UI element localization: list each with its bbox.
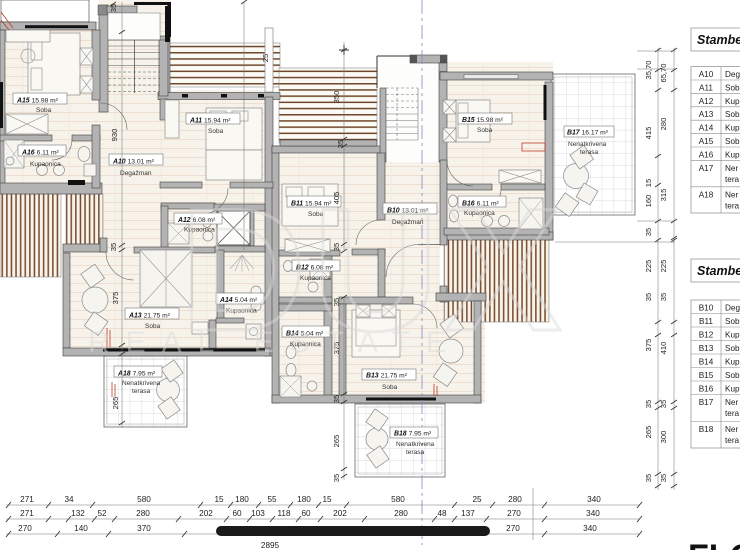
svg-text:270: 270 [18, 524, 32, 533]
svg-text:35: 35 [644, 400, 653, 408]
svg-text:Kup: Kup [725, 124, 740, 133]
svg-text:A15: A15 [699, 137, 714, 146]
svg-text:Deg: Deg [725, 304, 740, 313]
svg-text:25: 25 [261, 54, 270, 62]
svg-text:Sob: Sob [725, 317, 740, 326]
svg-text:35: 35 [644, 293, 653, 301]
svg-text:tera: tera [725, 175, 740, 184]
svg-text:A18: A18 [699, 190, 714, 199]
svg-text:tera: tera [725, 201, 740, 210]
svg-text:280: 280 [394, 509, 408, 518]
svg-text:103: 103 [251, 509, 265, 518]
svg-text:B18: B18 [699, 425, 714, 434]
svg-text:65,70: 65,70 [659, 63, 668, 82]
svg-text:25: 25 [472, 495, 482, 504]
svg-text:A16: A16 [699, 150, 714, 159]
svg-text:270: 270 [507, 509, 521, 518]
svg-text:tera: tera [725, 409, 740, 418]
svg-text:A13 21.75 m²: A13 21.75 m² [128, 313, 171, 320]
svg-text:terasa: terasa [580, 149, 598, 156]
svg-text:265: 265 [644, 426, 653, 439]
svg-text:Ner: Ner [725, 425, 738, 434]
svg-text:Nenatkrivena: Nenatkrivena [396, 441, 435, 448]
svg-text:B13 21.75 m²: B13 21.75 m² [366, 373, 408, 380]
svg-text:A13: A13 [699, 110, 714, 119]
svg-text:Ner: Ner [725, 164, 738, 173]
svg-text:A15 15.98 m²: A15 15.98 m² [16, 98, 59, 105]
svg-text:FLO: FLO [688, 538, 740, 550]
svg-text:580: 580 [137, 495, 151, 504]
svg-text:580: 580 [391, 495, 405, 504]
svg-text:A11 15.94 m²: A11 15.94 m² [189, 118, 231, 125]
svg-text:280: 280 [136, 509, 150, 518]
svg-text:140: 140 [74, 524, 88, 533]
svg-text:A11: A11 [699, 83, 713, 92]
svg-text:Soba: Soba [208, 128, 224, 135]
svg-text:Kup: Kup [725, 150, 740, 159]
svg-text:B12: B12 [699, 331, 714, 340]
svg-text:Sob: Sob [725, 371, 740, 380]
svg-text:B11: B11 [699, 317, 713, 326]
svg-text:Sob: Sob [725, 344, 740, 353]
svg-text:340: 340 [583, 524, 597, 533]
svg-text:A10: A10 [699, 70, 714, 79]
svg-text:271: 271 [20, 495, 34, 504]
svg-text:Kup: Kup [725, 358, 740, 367]
svg-text:REAL ESTATE: REAL ESTATE [88, 326, 462, 359]
svg-text:Deg: Deg [725, 70, 740, 79]
svg-text:350: 350 [332, 91, 341, 104]
svg-text:55: 55 [267, 495, 277, 504]
svg-text:52: 52 [97, 509, 107, 518]
svg-text:Stambena: Stambena [697, 264, 740, 278]
svg-text:A17: A17 [699, 164, 714, 173]
svg-text:35: 35 [659, 293, 668, 301]
svg-text:Sob: Sob [725, 137, 740, 146]
svg-text:35: 35 [109, 4, 118, 12]
svg-text:137: 137 [461, 509, 475, 518]
svg-text:Soba: Soba [477, 127, 493, 134]
svg-text:35: 35 [109, 243, 118, 251]
svg-text:B13: B13 [699, 344, 714, 353]
svg-text:225: 225 [644, 260, 653, 273]
svg-text:Kup: Kup [725, 385, 740, 394]
svg-text:340: 340 [587, 495, 601, 504]
svg-text:35,70: 35,70 [644, 60, 653, 79]
svg-text:180: 180 [235, 495, 249, 504]
svg-text:15: 15 [322, 495, 332, 504]
svg-text:132: 132 [71, 509, 85, 518]
svg-text:Kup: Kup [725, 97, 740, 106]
svg-text:Ner: Ner [725, 190, 738, 199]
svg-text:270: 270 [506, 524, 520, 533]
svg-text:375: 375 [644, 339, 653, 352]
svg-text:B18 7.95 m²: B18 7.95 m² [394, 431, 432, 438]
svg-text:280: 280 [659, 118, 668, 131]
svg-text:terasa: terasa [406, 449, 424, 456]
svg-text:Nenatkrivena: Nenatkrivena [122, 380, 161, 387]
svg-text:Nenatkrivena: Nenatkrivena [568, 141, 607, 148]
svg-text:Soba: Soba [36, 107, 52, 114]
svg-text:B17: B17 [699, 398, 714, 407]
svg-text:35: 35 [332, 395, 341, 403]
svg-text:35: 35 [332, 474, 341, 482]
svg-text:A18 7.95 m²: A18 7.95 m² [117, 371, 156, 378]
svg-text:Kup: Kup [725, 331, 740, 340]
svg-text:35: 35 [644, 228, 653, 236]
svg-text:265: 265 [111, 397, 120, 410]
svg-text:2895: 2895 [261, 541, 280, 550]
svg-text:35: 35 [644, 474, 653, 482]
svg-text:15: 15 [644, 179, 653, 187]
svg-text:Stambena: Stambena [697, 33, 740, 47]
svg-text:A16 6.11 m²: A16 6.11 m² [21, 150, 60, 157]
svg-text:415: 415 [644, 127, 653, 140]
svg-text:180: 180 [297, 495, 311, 504]
svg-text:34: 34 [64, 495, 74, 504]
svg-text:930: 930 [110, 129, 119, 142]
svg-text:Ner: Ner [725, 398, 738, 407]
svg-text:160: 160 [644, 195, 653, 208]
svg-text:300: 300 [659, 431, 668, 444]
svg-text:A10 13.01 m²: A10 13.01 m² [112, 159, 155, 166]
svg-text:35: 35 [659, 400, 668, 408]
svg-text:Soba: Soba [382, 384, 398, 391]
svg-text:202: 202 [333, 509, 347, 518]
svg-text:370: 370 [137, 524, 151, 533]
svg-text:B10: B10 [699, 304, 714, 313]
svg-text:tera: tera [725, 436, 740, 445]
svg-text:B16: B16 [699, 385, 714, 394]
svg-text:Kupaonica: Kupaonica [30, 161, 61, 168]
svg-text:A14: A14 [699, 124, 714, 133]
svg-text:35: 35 [336, 140, 345, 148]
svg-text:271: 271 [20, 509, 34, 518]
svg-text:265: 265 [332, 435, 341, 448]
svg-text:60: 60 [232, 509, 242, 518]
svg-text:B14: B14 [699, 358, 714, 367]
svg-text:35: 35 [659, 474, 668, 482]
svg-text:B15: B15 [699, 371, 714, 380]
svg-text:118: 118 [277, 509, 290, 518]
svg-text:315: 315 [659, 189, 668, 202]
svg-text:202: 202 [199, 509, 213, 518]
svg-text:48: 48 [437, 509, 447, 518]
svg-text:A12: A12 [699, 97, 714, 106]
svg-text:B15 15.98 m²: B15 15.98 m² [462, 117, 504, 124]
svg-text:225: 225 [659, 260, 668, 273]
svg-text:410: 410 [659, 342, 668, 355]
svg-text:B17 16.17 m²: B17 16.17 m² [567, 130, 609, 137]
svg-text:60: 60 [301, 509, 311, 518]
svg-text:Sob: Sob [725, 83, 740, 92]
svg-text:terasa: terasa [132, 388, 150, 395]
svg-text:340: 340 [586, 509, 600, 518]
svg-text:280: 280 [508, 495, 522, 504]
svg-text:Degažman: Degažman [120, 170, 152, 177]
svg-text:15: 15 [214, 495, 224, 504]
svg-text:375: 375 [111, 292, 120, 305]
svg-text:Sob: Sob [725, 110, 740, 119]
